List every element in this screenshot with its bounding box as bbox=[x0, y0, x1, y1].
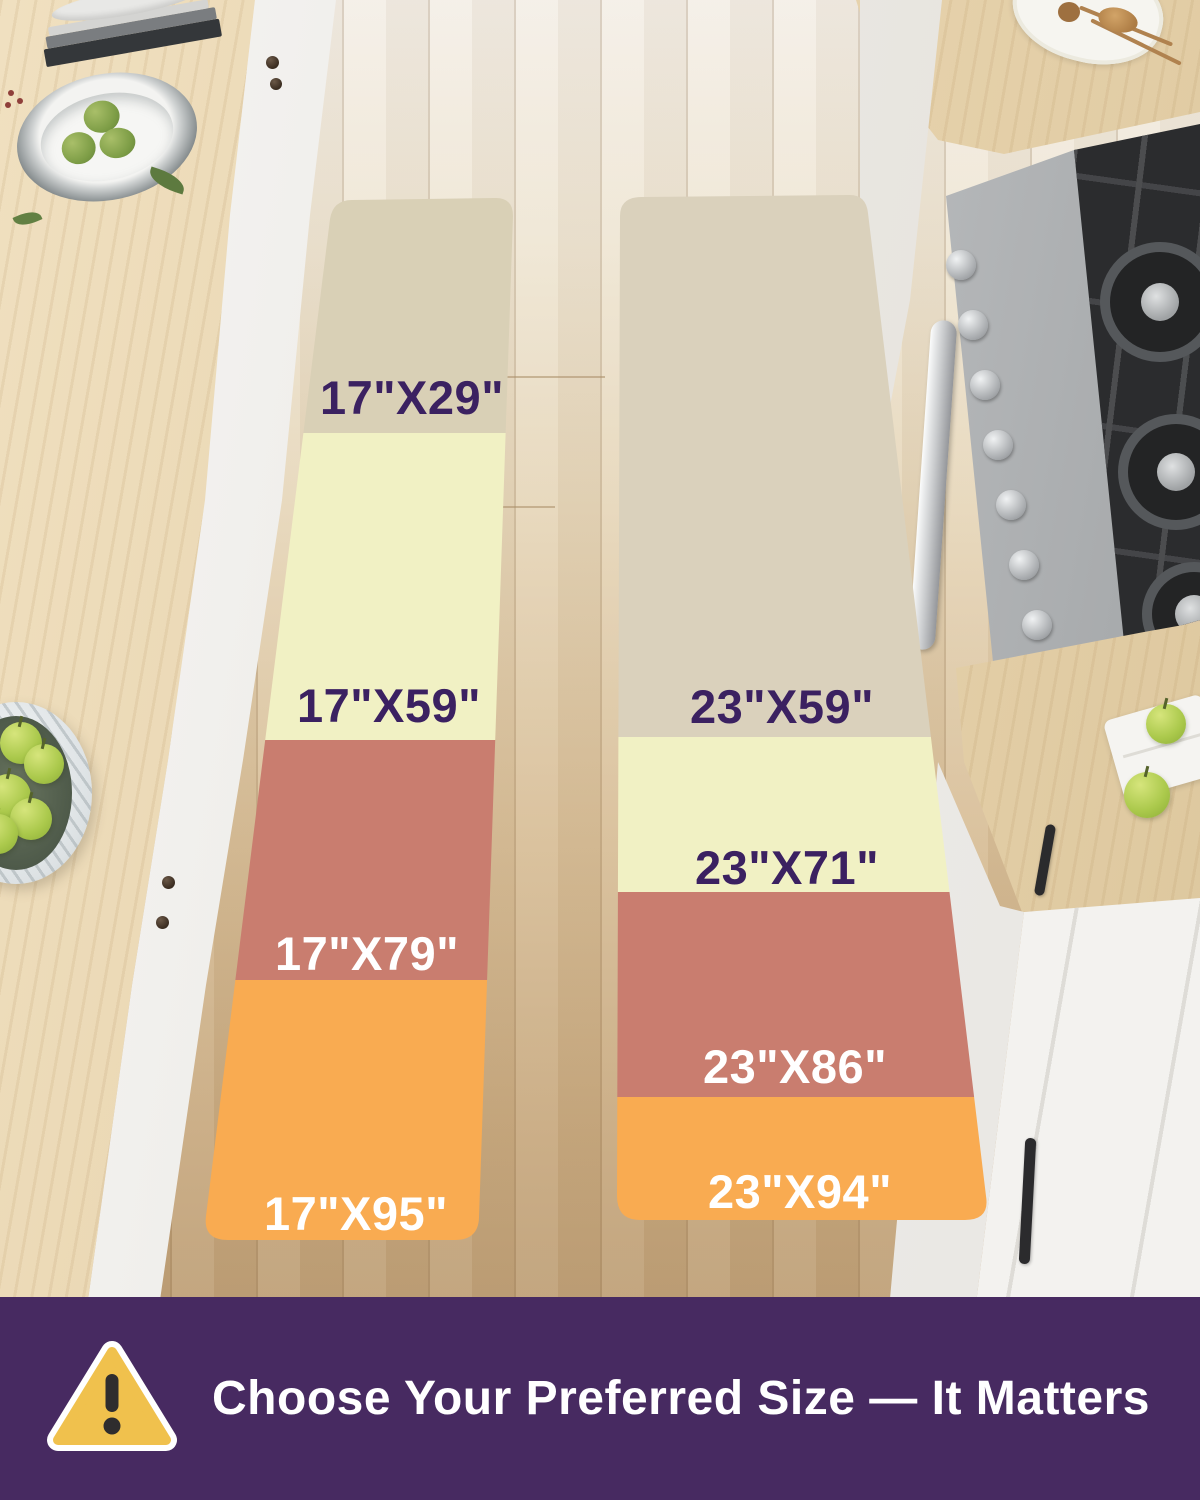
size-overlay: 17"X29" 17"X59" 17"X79" 17"X95" 23"X59" … bbox=[0, 0, 1200, 1500]
kitchen-size-infographic: 17"X29" 17"X59" 17"X79" 17"X95" 23"X59" … bbox=[0, 0, 1200, 1500]
size-label-17x29: 17"X29" bbox=[320, 371, 504, 424]
size-label-23x59: 23"X59" bbox=[690, 680, 874, 733]
size-label-17x59: 17"X59" bbox=[297, 679, 481, 732]
right-runner-section-1 bbox=[600, 185, 1010, 737]
warning-triangle-icon bbox=[46, 1339, 178, 1459]
size-label-17x79: 17"X79" bbox=[275, 927, 459, 980]
size-label-23x94: 23"X94" bbox=[708, 1165, 892, 1218]
size-label-23x86: 23"X86" bbox=[703, 1040, 887, 1093]
size-label-17x95: 17"X95" bbox=[264, 1187, 448, 1240]
size-warning-banner: Choose Your Preferred Size — It Matters bbox=[0, 1297, 1200, 1500]
banner-text: Choose Your Preferred Size — It Matters bbox=[204, 1371, 1200, 1426]
size-label-23x71: 23"X71" bbox=[695, 841, 879, 894]
exclamation-mark bbox=[104, 1374, 121, 1435]
